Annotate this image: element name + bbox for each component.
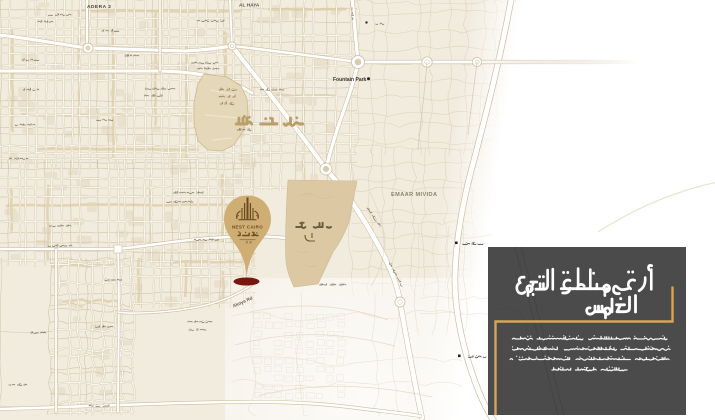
svg-text:ADERA 2: ADERA 2	[87, 4, 111, 10]
svg-text:Fountain Park: Fountain Park	[333, 77, 367, 83]
svg-text:NEST CAIRO: NEST CAIRO	[232, 224, 263, 229]
svg-text:AL HAYA: AL HAYA	[239, 3, 260, 9]
svg-text:EMAAR MIVIDA: EMAAR MIVIDA	[391, 192, 437, 198]
